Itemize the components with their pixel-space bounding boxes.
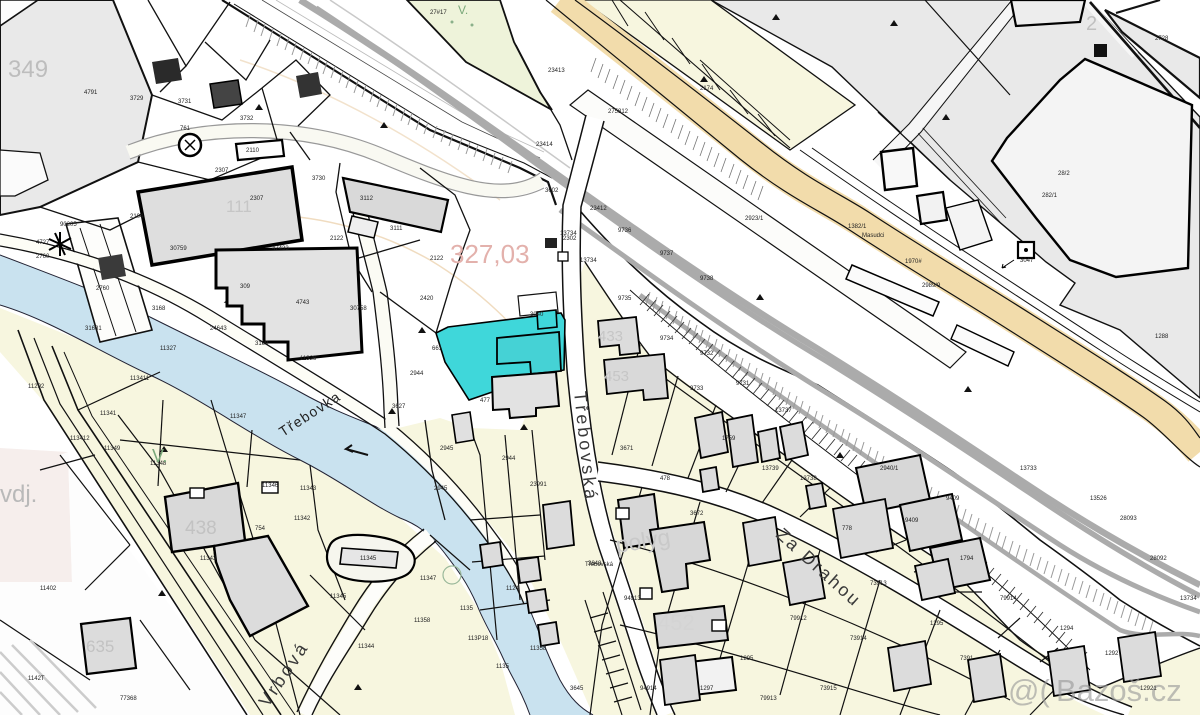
svg-text:1292: 1292 xyxy=(1105,651,1119,657)
svg-text:11358: 11358 xyxy=(530,646,547,652)
svg-text:2307: 2307 xyxy=(250,196,264,202)
svg-text:11326: 11326 xyxy=(300,356,317,362)
svg-text:438: 438 xyxy=(185,518,217,539)
svg-text:11349: 11349 xyxy=(104,446,121,452)
svg-text:23414: 23414 xyxy=(536,142,553,148)
svg-text:2728: 2728 xyxy=(1155,36,1169,42)
svg-text:23412: 23412 xyxy=(590,206,607,212)
svg-text:3645: 3645 xyxy=(570,686,584,692)
svg-text:113411: 113411 xyxy=(130,376,150,382)
svg-text:2174: 2174 xyxy=(700,86,714,92)
svg-text:Masudci: Masudci xyxy=(862,233,884,239)
svg-text:9737: 9737 xyxy=(660,251,674,257)
svg-text:94914: 94914 xyxy=(640,686,657,692)
svg-text:1295: 1295 xyxy=(740,656,754,662)
svg-text:11358: 11358 xyxy=(414,618,431,624)
svg-text:13738: 13738 xyxy=(800,476,817,482)
svg-text:73915: 73915 xyxy=(820,686,837,692)
svg-text:2989/9: 2989/9 xyxy=(922,283,941,289)
svg-text:9735: 9735 xyxy=(618,296,632,302)
svg-text:11342: 11342 xyxy=(294,516,311,522)
svg-text:13739: 13739 xyxy=(762,466,779,472)
svg-text:30758: 30758 xyxy=(350,306,367,312)
svg-text:761: 761 xyxy=(180,126,191,132)
svg-text:vdj.: vdj. xyxy=(0,481,37,508)
svg-text:28/2: 28/2 xyxy=(1058,171,1070,177)
svg-text:11347: 11347 xyxy=(230,414,247,420)
svg-text:11347: 11347 xyxy=(420,576,437,582)
svg-text:2940/1: 2940/1 xyxy=(880,466,899,472)
svg-text:635: 635 xyxy=(86,637,114,656)
svg-text:9732: 9732 xyxy=(700,351,714,357)
svg-text:73913: 73913 xyxy=(870,581,887,587)
svg-text:2944: 2944 xyxy=(410,371,424,377)
svg-text:282/1: 282/1 xyxy=(1042,193,1058,199)
svg-text:9734: 9734 xyxy=(660,336,674,342)
svg-text:3047: 3047 xyxy=(1020,258,1034,264)
svg-text:9733: 9733 xyxy=(690,386,704,392)
svg-text:3731: 3731 xyxy=(178,99,192,105)
svg-text:13733: 13733 xyxy=(1020,466,1037,472)
svg-text:3602: 3602 xyxy=(545,188,559,194)
svg-text:754: 754 xyxy=(255,526,266,532)
svg-text:1382/1: 1382/1 xyxy=(848,224,867,230)
svg-text:478: 478 xyxy=(660,476,671,482)
svg-text:661: 661 xyxy=(432,346,443,352)
svg-text:1135: 1135 xyxy=(496,664,510,670)
svg-text:1297: 1297 xyxy=(700,686,714,692)
svg-text:1142T: 1142T xyxy=(28,676,45,682)
svg-text:2: 2 xyxy=(1086,13,1097,35)
svg-text:2302: 2302 xyxy=(563,236,577,242)
svg-text:94913: 94913 xyxy=(624,596,641,602)
svg-text:11402: 11402 xyxy=(40,586,57,592)
svg-text:28092: 28092 xyxy=(1150,556,1167,562)
svg-text:77368: 77368 xyxy=(120,696,137,702)
svg-text:111: 111 xyxy=(226,197,252,216)
svg-text:3732: 3732 xyxy=(240,116,254,122)
svg-text:4743: 4743 xyxy=(296,300,310,306)
svg-text:1970#: 1970# xyxy=(905,259,922,265)
svg-text:3672: 3672 xyxy=(690,511,704,517)
svg-text:3648: 3648 xyxy=(588,561,602,567)
svg-text:7391: 7391 xyxy=(960,656,974,662)
svg-text:778: 778 xyxy=(842,526,853,532)
svg-text:113412: 113412 xyxy=(70,436,90,442)
svg-text:3169: 3169 xyxy=(255,341,269,347)
svg-text:12921: 12921 xyxy=(1140,686,1157,692)
svg-text:28093: 28093 xyxy=(1120,516,1137,522)
svg-text:3111: 3111 xyxy=(390,226,403,232)
svg-text:1794: 1794 xyxy=(960,556,974,562)
svg-text:79913: 79913 xyxy=(760,696,777,702)
svg-text:2104: 2104 xyxy=(130,214,144,220)
svg-text:27#17: 27#17 xyxy=(430,10,447,16)
svg-text:1135: 1135 xyxy=(460,606,474,612)
svg-text:4727: 4727 xyxy=(36,240,50,246)
svg-text:2945: 2945 xyxy=(434,486,448,492)
svg-text:90205: 90205 xyxy=(60,222,77,228)
svg-text:1295: 1295 xyxy=(930,621,944,627)
svg-text:2923/1: 2923/1 xyxy=(745,216,764,222)
svg-text:327,03: 327,03 xyxy=(450,239,530,269)
svg-text:11343: 11343 xyxy=(300,486,317,492)
svg-text:9736: 9736 xyxy=(618,228,632,234)
svg-text:3671: 3671 xyxy=(620,446,634,452)
svg-text:2760: 2760 xyxy=(96,286,110,292)
svg-text:3729: 3729 xyxy=(130,96,144,102)
svg-text:1759: 1759 xyxy=(722,436,736,442)
svg-text:3040: 3040 xyxy=(530,312,544,318)
svg-text:9738: 9738 xyxy=(700,276,714,282)
svg-text:2122: 2122 xyxy=(330,236,344,242)
svg-text:47433: 47433 xyxy=(272,246,289,252)
svg-text:3168: 3168 xyxy=(152,306,166,312)
svg-text:309: 309 xyxy=(240,284,251,290)
svg-text:1124: 1124 xyxy=(506,586,520,592)
svg-text:23413: 23413 xyxy=(548,68,565,74)
svg-text:3112: 3112 xyxy=(360,196,374,202)
svg-text:9409: 9409 xyxy=(905,518,919,524)
svg-text:13734: 13734 xyxy=(1180,596,1197,602)
svg-text:2945: 2945 xyxy=(440,446,454,452)
svg-text:11345: 11345 xyxy=(330,594,347,600)
svg-text:113P18: 113P18 xyxy=(468,636,489,642)
svg-text:9731: 9731 xyxy=(736,381,750,387)
svg-text:2307: 2307 xyxy=(215,168,229,174)
svg-text:79912: 79912 xyxy=(790,616,807,622)
svg-text:1294: 1294 xyxy=(1060,626,1074,632)
svg-text:2110: 2110 xyxy=(246,148,260,154)
svg-text:V.: V. xyxy=(152,446,167,466)
svg-text:V.: V. xyxy=(458,3,468,17)
svg-text:349: 349 xyxy=(8,56,48,83)
svg-text:13526: 13526 xyxy=(1090,496,1107,502)
svg-text:2760: 2760 xyxy=(36,254,50,260)
svg-text:2122: 2122 xyxy=(430,256,444,262)
svg-text:30759: 30759 xyxy=(170,246,187,252)
svg-text:4791: 4791 xyxy=(84,90,98,96)
svg-text:477: 477 xyxy=(480,398,491,404)
svg-text:13737: 13737 xyxy=(775,408,792,414)
svg-text:433: 433 xyxy=(598,328,623,345)
svg-text:453: 453 xyxy=(604,368,629,385)
svg-text:11344: 11344 xyxy=(358,644,375,650)
svg-text:2420: 2420 xyxy=(420,296,434,302)
svg-text:31681: 31681 xyxy=(85,326,102,332)
svg-text:24643: 24643 xyxy=(210,326,227,332)
svg-text:11341: 11341 xyxy=(100,411,117,417)
svg-text:13734: 13734 xyxy=(580,258,597,264)
svg-text:11346: 11346 xyxy=(262,483,279,489)
svg-text:1288: 1288 xyxy=(1155,334,1169,340)
svg-text:452: 452 xyxy=(658,610,695,635)
svg-text:11343: 11343 xyxy=(200,556,217,562)
svg-text:11327: 11327 xyxy=(160,346,177,352)
svg-text:73914: 73914 xyxy=(850,636,867,642)
svg-text:79914: 79914 xyxy=(1000,596,1017,602)
svg-text:3730: 3730 xyxy=(312,176,326,182)
svg-text:275812: 275812 xyxy=(608,109,629,115)
svg-text:3627: 3627 xyxy=(392,404,406,410)
svg-text:11292: 11292 xyxy=(28,384,45,390)
svg-text:23991: 23991 xyxy=(530,482,547,488)
svg-text:9409: 9409 xyxy=(946,496,960,502)
svg-text:11345: 11345 xyxy=(360,556,377,562)
svg-text:2944: 2944 xyxy=(502,456,516,462)
